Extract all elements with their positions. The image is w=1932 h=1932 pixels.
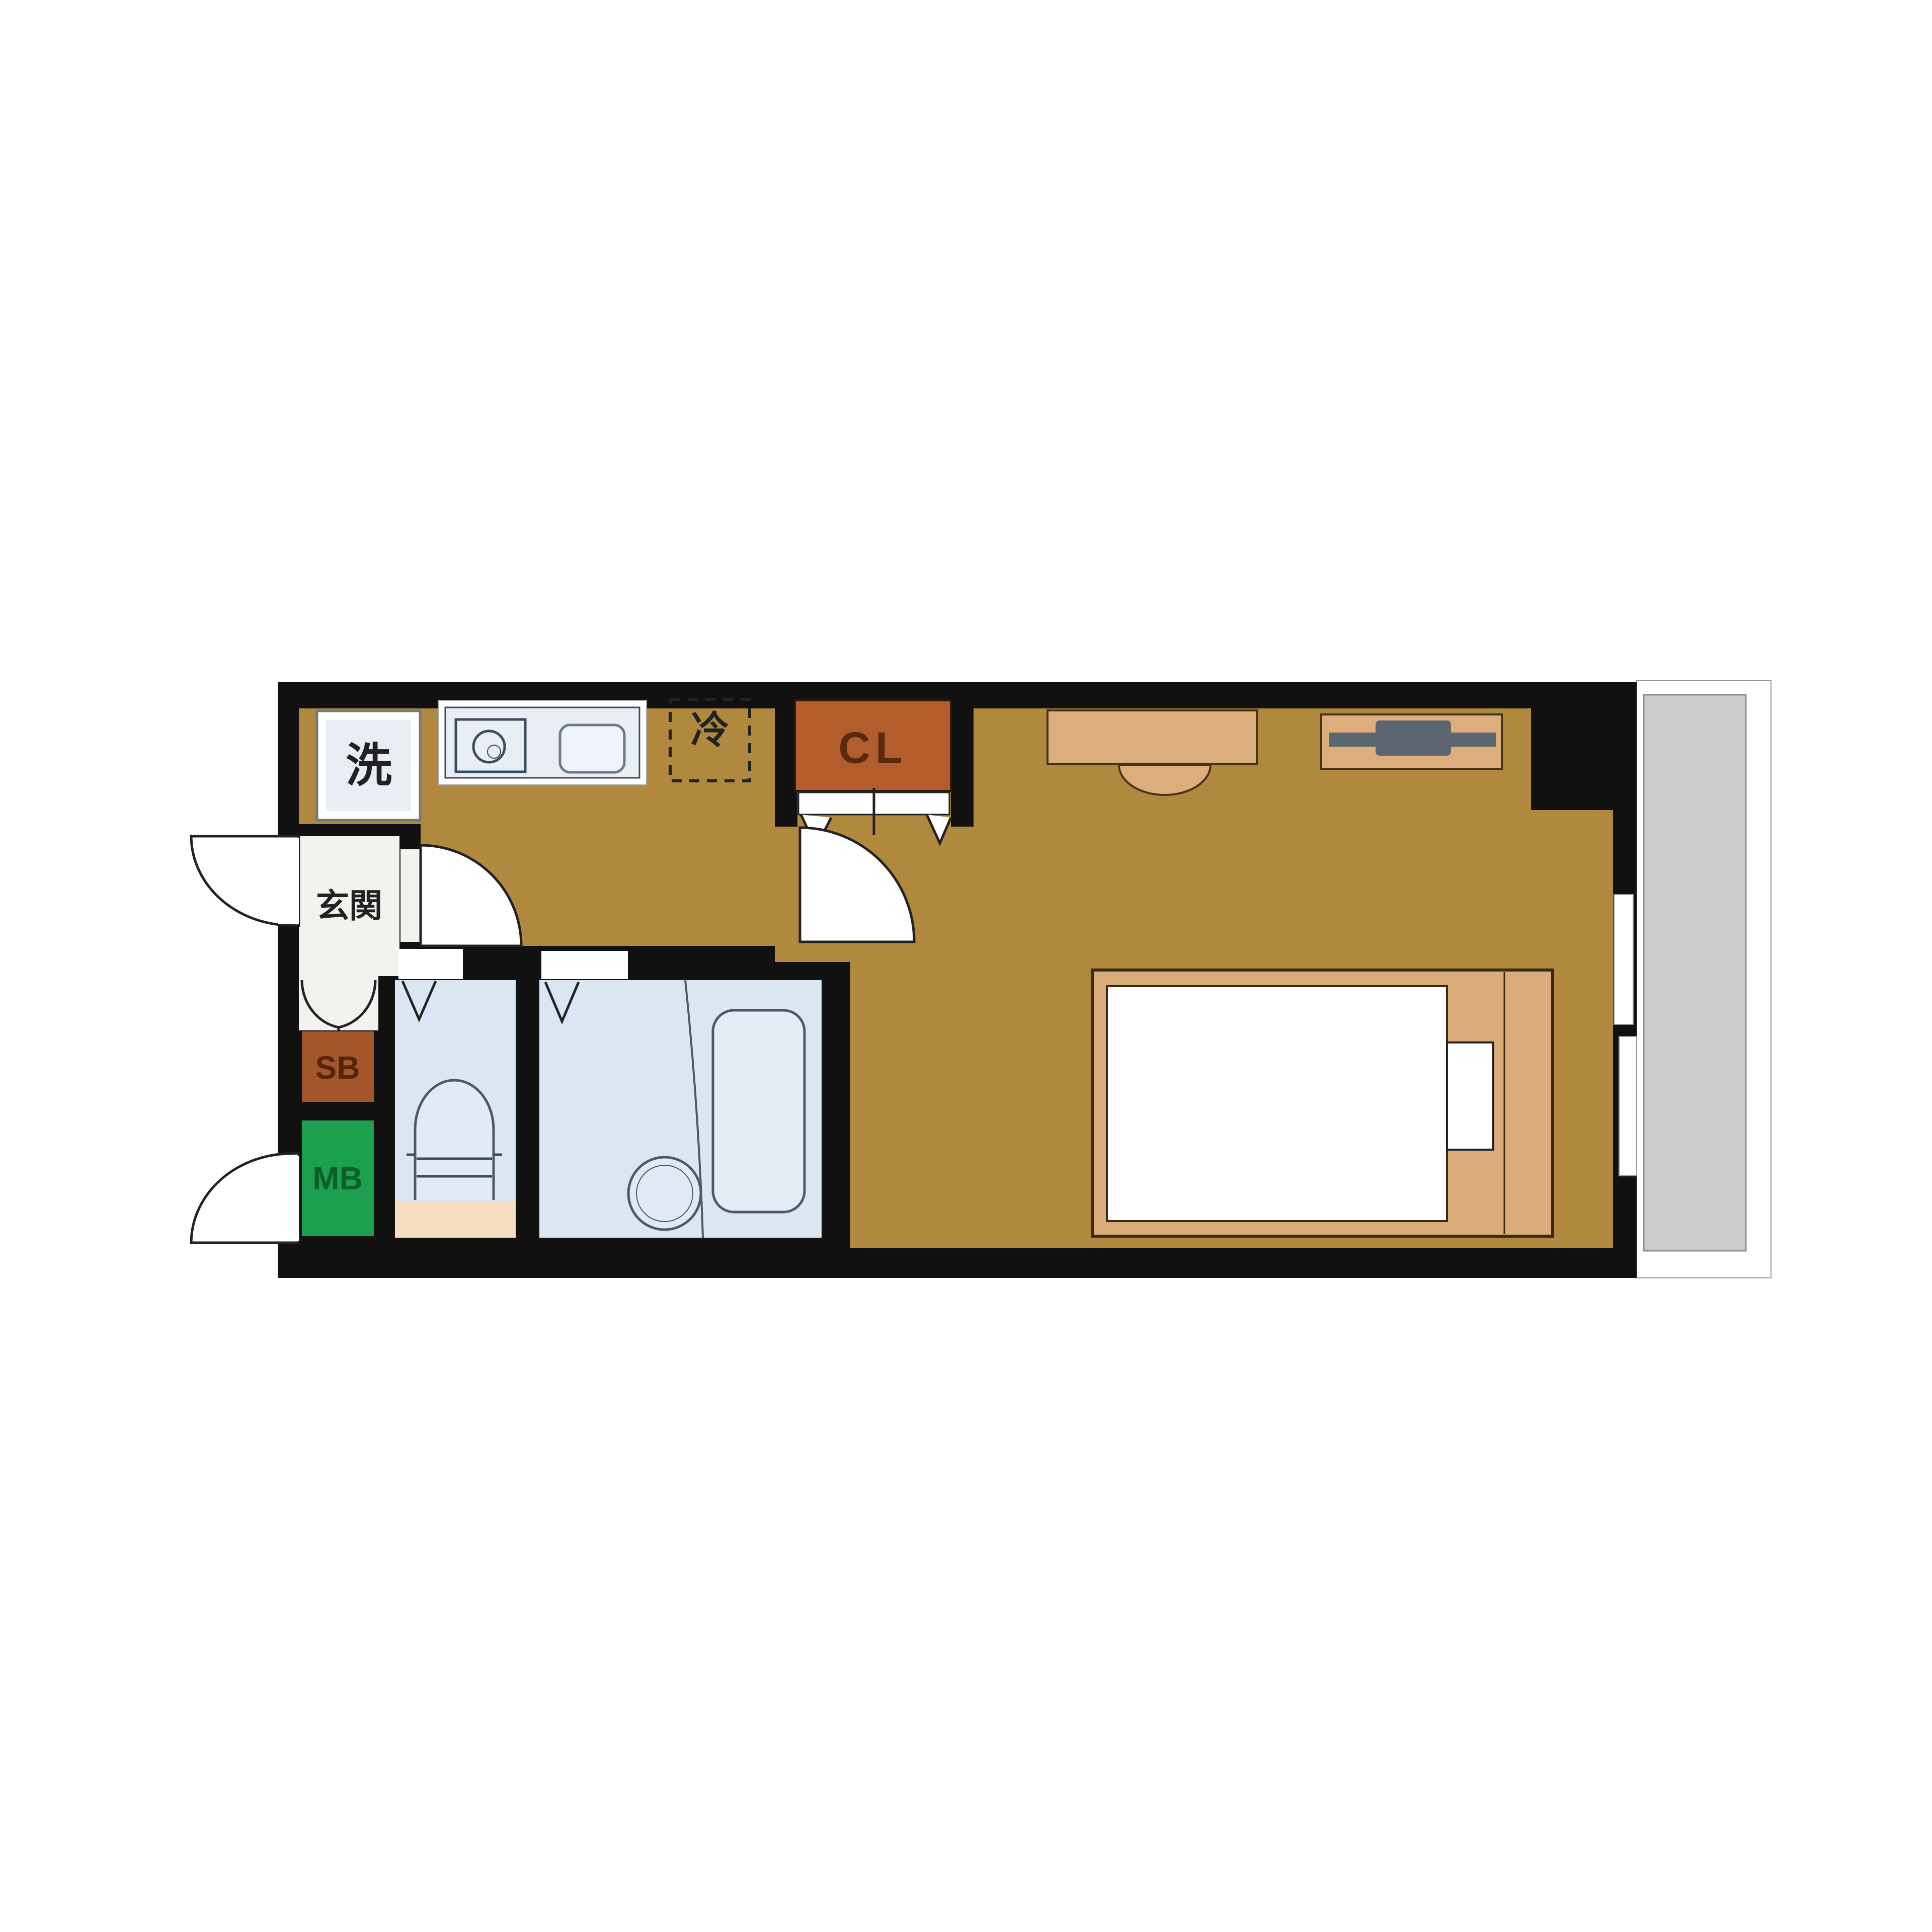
meter-box-label: MB xyxy=(312,1160,363,1196)
tv-stand-icon xyxy=(1376,720,1451,756)
washing-machine-space: 洗 xyxy=(317,711,420,820)
floorplan-page: 玄関 洗 xyxy=(0,0,1932,1932)
wall-stub-right-of-closet xyxy=(951,708,974,827)
pillow xyxy=(1447,1042,1493,1150)
window-pane-1 xyxy=(1614,895,1633,1024)
toilet-room xyxy=(395,949,516,1238)
shoe-box-label: SB xyxy=(315,1050,360,1086)
toilet-door-opening xyxy=(398,949,463,979)
desk-top xyxy=(1048,710,1257,764)
entrance-floor-lower xyxy=(299,976,378,1030)
bathtub xyxy=(713,1010,804,1212)
balcony-floor xyxy=(1644,695,1746,1251)
closet-label: CL xyxy=(838,723,907,773)
fridge-label: 冷 xyxy=(691,709,729,752)
entry-door-opening xyxy=(278,838,299,924)
mattress xyxy=(1107,986,1447,1221)
shoe-box: SB xyxy=(302,1031,374,1102)
structural-column xyxy=(1531,682,1613,810)
kitchen-counter xyxy=(438,700,647,785)
meter-box-door-opening xyxy=(278,1156,299,1241)
meter-box: MB xyxy=(302,1120,374,1236)
toilet-bowl xyxy=(415,1080,494,1200)
bathroom xyxy=(539,951,822,1238)
balcony xyxy=(1637,681,1771,1278)
window-pane-2 xyxy=(1619,1036,1637,1176)
floorplan-drawing: 玄関 洗 xyxy=(0,0,1932,1932)
passage-floor-lower xyxy=(850,962,974,1248)
bed xyxy=(1092,970,1553,1236)
sink-icon xyxy=(560,725,624,772)
toilet-room-step xyxy=(395,1201,516,1238)
bathroom-door-opening xyxy=(541,951,628,979)
hall-door-opening xyxy=(400,849,420,942)
bath-drain-icon xyxy=(628,1157,701,1230)
tv-board xyxy=(1321,714,1502,769)
entrance-label: 玄関 xyxy=(316,887,382,924)
washer-label: 洗 xyxy=(346,740,392,791)
